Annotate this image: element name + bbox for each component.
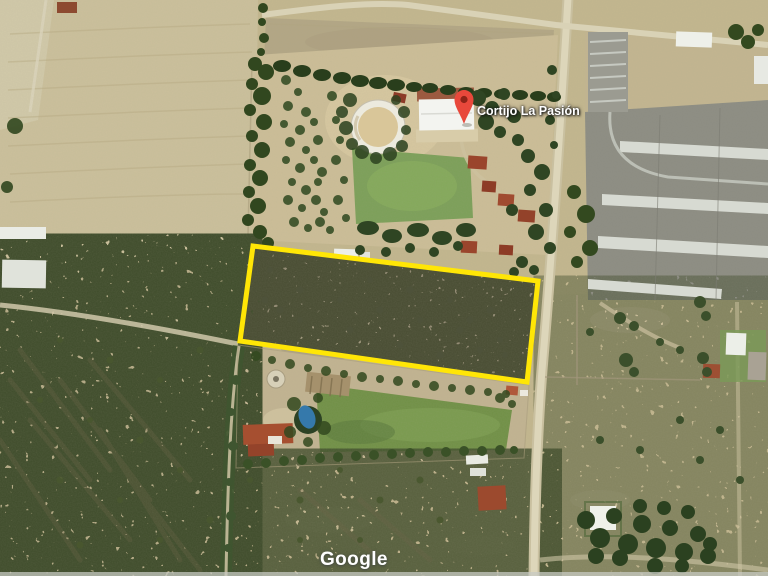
map-viewport[interactable]: Cortijo La Pasión Google xyxy=(0,0,768,576)
place-name-label[interactable]: Cortijo La Pasión xyxy=(477,104,580,118)
map-pin-icon[interactable] xyxy=(448,84,480,126)
red-roof-house xyxy=(477,485,506,510)
google-logo[interactable]: Google xyxy=(320,549,388,571)
bottom-edge-band xyxy=(0,572,768,576)
satellite-imagery xyxy=(0,0,768,576)
